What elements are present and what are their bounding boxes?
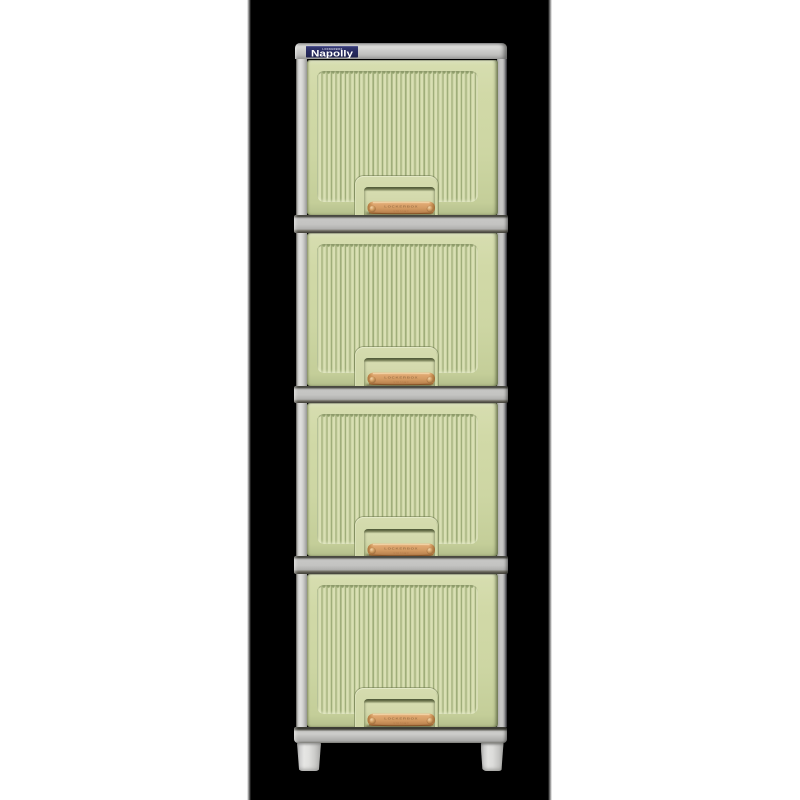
svg-text:LOCKERBOX: LOCKERBOX — [384, 376, 419, 380]
svg-text:Napolly: Napolly — [311, 48, 353, 57]
svg-text:storage: storage — [393, 722, 410, 725]
svg-text:LOCKERBOX: LOCKERBOX — [384, 717, 419, 721]
svg-text:storage: storage — [393, 551, 410, 554]
svg-text:storage: storage — [393, 381, 410, 384]
svg-text:LOCKERBOX: LOCKERBOX — [384, 204, 419, 208]
svg-text:storage: storage — [393, 209, 410, 212]
svg-text:LOCKERBOX: LOCKERBOX — [384, 546, 419, 550]
